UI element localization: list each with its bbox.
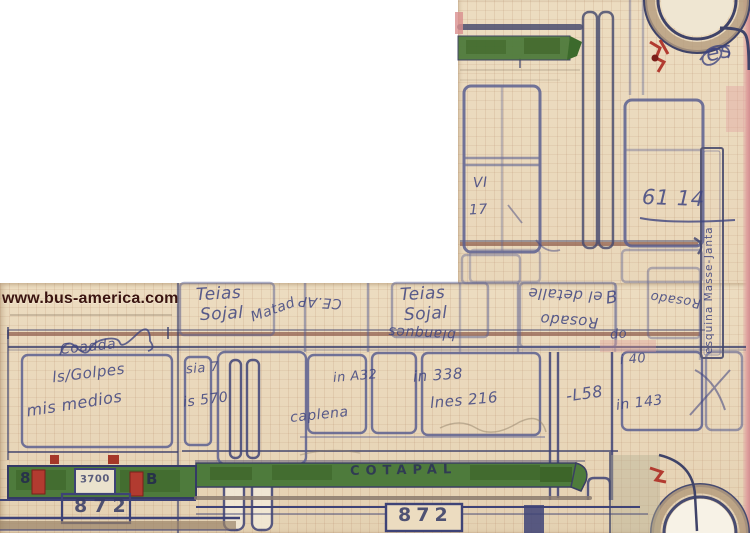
note-in-338: in 338 [413,366,464,384]
note-rosado-2: Rosado [649,290,701,310]
note-ceap: CE.AP [298,293,342,310]
note-es: es [704,40,734,67]
cotapal-marking: COTAPAL [350,463,457,478]
rear-plate-text: 3700 [80,474,110,485]
note-do: do [609,327,627,341]
note-esquina-masse-janta: esquina Masse-Janta [704,152,715,354]
note-sojal-1: Sojal [200,305,244,324]
fleet-number-rear: 872 [74,497,132,516]
fleet-number-main: 872 [398,506,453,525]
note-i-40: i 40 [619,352,646,367]
note-el-detalle: el detalle [528,285,603,304]
note-17: 17 [469,203,489,218]
note-mis-medios: mis medios [25,389,123,420]
note-lnes-216: lnes 216 [429,390,498,411]
scanned-bus-sketch: www.bus-america.com TeiasSojalMatadCE.AP… [0,0,750,533]
note-sia-7: sia 7 [185,361,219,377]
note-matad: Matad [249,296,297,325]
note-blanques: blanques [388,324,457,342]
rear-mark-b: B [146,472,158,487]
note-sojal-2: Sojal [404,305,448,324]
note-ls-golpes: ls/Golpes [51,362,125,386]
rear-mark-8: 8 [20,471,31,486]
handwritten-labels-layer: TeiasSojalMatadCE.APTeiasSojalblanquesel… [0,0,750,533]
note-in-a32: in A32 [333,368,378,385]
note-coadda: Coadda [59,337,116,357]
note-vi: VI [473,176,488,191]
note-teias-1: Teias [196,285,242,304]
note-rosado-1: Rosado [540,311,599,330]
note-in-143: in 143 [615,393,663,413]
note-b-loop: B [605,289,619,308]
note-l58: -L58 [565,383,604,404]
note-caplena: caplena [289,405,349,425]
note-61-14: 61 14 [642,187,705,210]
note-teias-2: Teias [400,285,446,304]
note-is-570: is 570 [182,390,229,409]
